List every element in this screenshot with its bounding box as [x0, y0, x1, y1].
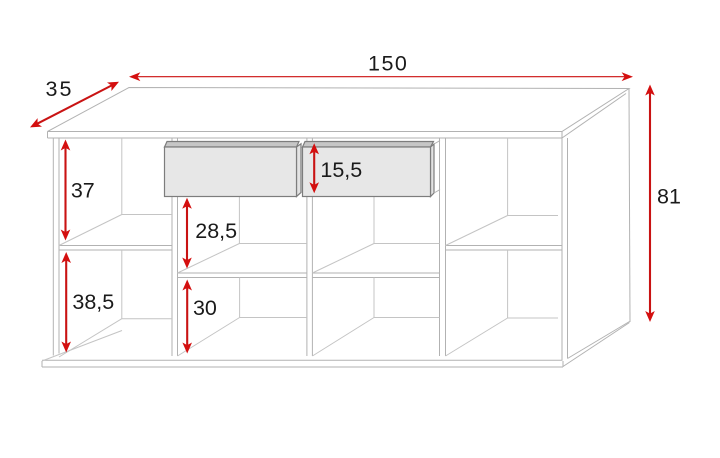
- svg-text:150: 150: [368, 52, 408, 76]
- svg-text:37: 37: [71, 178, 95, 202]
- svg-text:38,5: 38,5: [72, 290, 114, 314]
- svg-text:30: 30: [193, 296, 217, 320]
- svg-text:15,5: 15,5: [320, 158, 362, 182]
- svg-text:28,5: 28,5: [195, 219, 237, 243]
- svg-text:81: 81: [657, 185, 681, 209]
- svg-text:35: 35: [46, 77, 74, 101]
